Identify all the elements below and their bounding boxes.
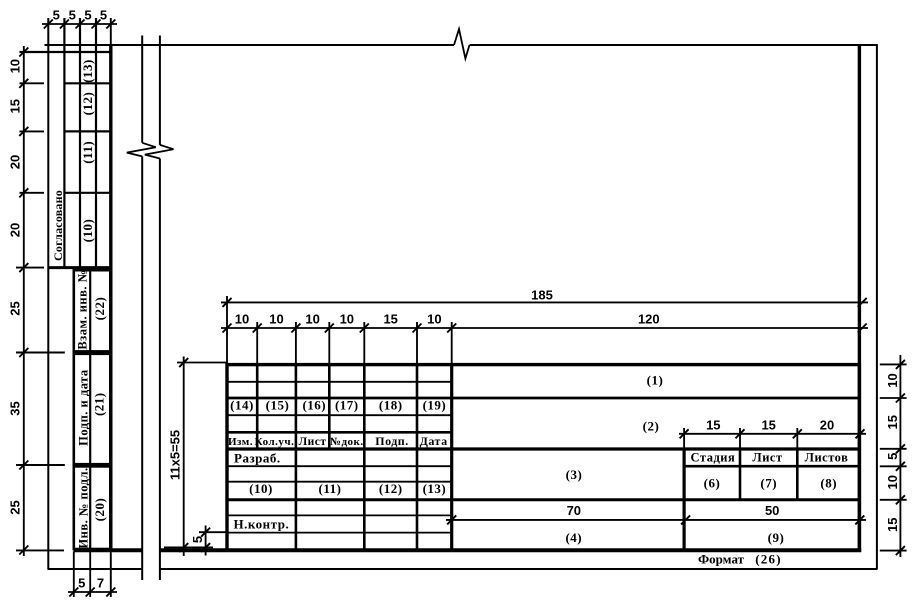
svg-text:5: 5 (53, 8, 60, 23)
svg-text:10: 10 (885, 475, 900, 489)
svg-text:5: 5 (885, 453, 900, 460)
svg-text:25: 25 (7, 301, 22, 315)
svg-text:15: 15 (761, 417, 775, 432)
svg-text:25: 25 (7, 500, 22, 514)
svg-text:(13): (13) (423, 481, 447, 496)
svg-text:5: 5 (78, 576, 85, 591)
svg-text:(13): (13) (80, 59, 95, 83)
svg-text:(14): (14) (230, 398, 254, 413)
svg-text:(17): (17) (335, 398, 359, 413)
svg-text:185: 185 (531, 287, 553, 302)
svg-text:№док.: №док. (330, 436, 364, 448)
svg-text:Лист: Лист (752, 450, 782, 464)
svg-text:10: 10 (340, 311, 354, 326)
svg-text:20: 20 (7, 155, 22, 169)
svg-text:(16): (16) (302, 398, 326, 413)
svg-text:7: 7 (97, 576, 104, 591)
svg-text:35: 35 (7, 401, 22, 415)
svg-text:Кол.уч.: Кол.уч. (255, 436, 295, 448)
svg-text:15: 15 (706, 417, 720, 432)
svg-text:(3): (3) (566, 467, 583, 482)
svg-text:10: 10 (7, 59, 22, 73)
svg-text:70: 70 (567, 503, 581, 518)
svg-text:(7): (7) (760, 476, 777, 491)
svg-text:15: 15 (885, 518, 900, 532)
svg-text:Подп.: Подп. (375, 434, 408, 448)
svg-text:(1): (1) (647, 373, 664, 388)
svg-text:120: 120 (638, 311, 660, 326)
svg-text:(15): (15) (266, 398, 290, 413)
svg-text:Формат: Формат (698, 552, 745, 567)
svg-text:5: 5 (190, 536, 205, 543)
svg-text:Изм.: Изм. (228, 436, 253, 448)
svg-text:Стадия: Стадия (691, 450, 736, 464)
svg-text:(12): (12) (379, 481, 403, 496)
svg-text:(4): (4) (565, 530, 582, 545)
svg-text:20: 20 (7, 223, 22, 237)
svg-text:20: 20 (820, 417, 834, 432)
svg-text:(21): (21) (91, 392, 106, 416)
svg-text:10: 10 (427, 311, 441, 326)
svg-text:Н.контр.: Н.контр. (234, 516, 290, 531)
svg-text:5: 5 (84, 8, 91, 23)
svg-text:10: 10 (235, 311, 249, 326)
svg-text:10: 10 (885, 373, 900, 387)
svg-text:5: 5 (100, 8, 107, 23)
svg-text:Взам. инв. №: Взам. инв. № (75, 269, 89, 349)
svg-text:(22): (22) (92, 297, 107, 321)
svg-text:Разраб.: Разраб. (234, 450, 281, 465)
svg-text:10: 10 (269, 311, 283, 326)
svg-text:11x5=55: 11x5=55 (168, 430, 183, 480)
svg-text:Инв. № подл.: Инв. № подл. (76, 467, 90, 548)
svg-text:(8): (8) (820, 476, 837, 491)
svg-text:(19): (19) (423, 398, 447, 413)
svg-text:(9): (9) (768, 530, 785, 545)
svg-text:Согласовано: Согласовано (51, 190, 65, 261)
svg-text:(10): (10) (80, 219, 95, 243)
svg-text:(20): (20) (92, 498, 107, 522)
svg-text:5: 5 (69, 8, 76, 23)
svg-text:50: 50 (765, 503, 779, 518)
svg-text:15: 15 (7, 99, 22, 113)
svg-text:15: 15 (383, 311, 397, 326)
svg-text:Подп. и дата: Подп. и дата (77, 369, 91, 446)
svg-text:Дата: Дата (420, 434, 448, 448)
svg-text:(12): (12) (80, 92, 95, 116)
svg-text:15: 15 (885, 415, 900, 429)
svg-text:(11): (11) (80, 141, 95, 164)
svg-text:Лист: Лист (299, 436, 327, 448)
svg-text:Листов: Листов (805, 450, 849, 464)
svg-text:(10): (10) (249, 481, 273, 496)
svg-text:(26): (26) (755, 552, 781, 567)
svg-text:(18): (18) (379, 398, 403, 413)
svg-text:(2): (2) (643, 418, 660, 433)
svg-text:(11): (11) (319, 481, 342, 496)
svg-text:10: 10 (305, 311, 319, 326)
svg-text:(6): (6) (704, 476, 721, 491)
